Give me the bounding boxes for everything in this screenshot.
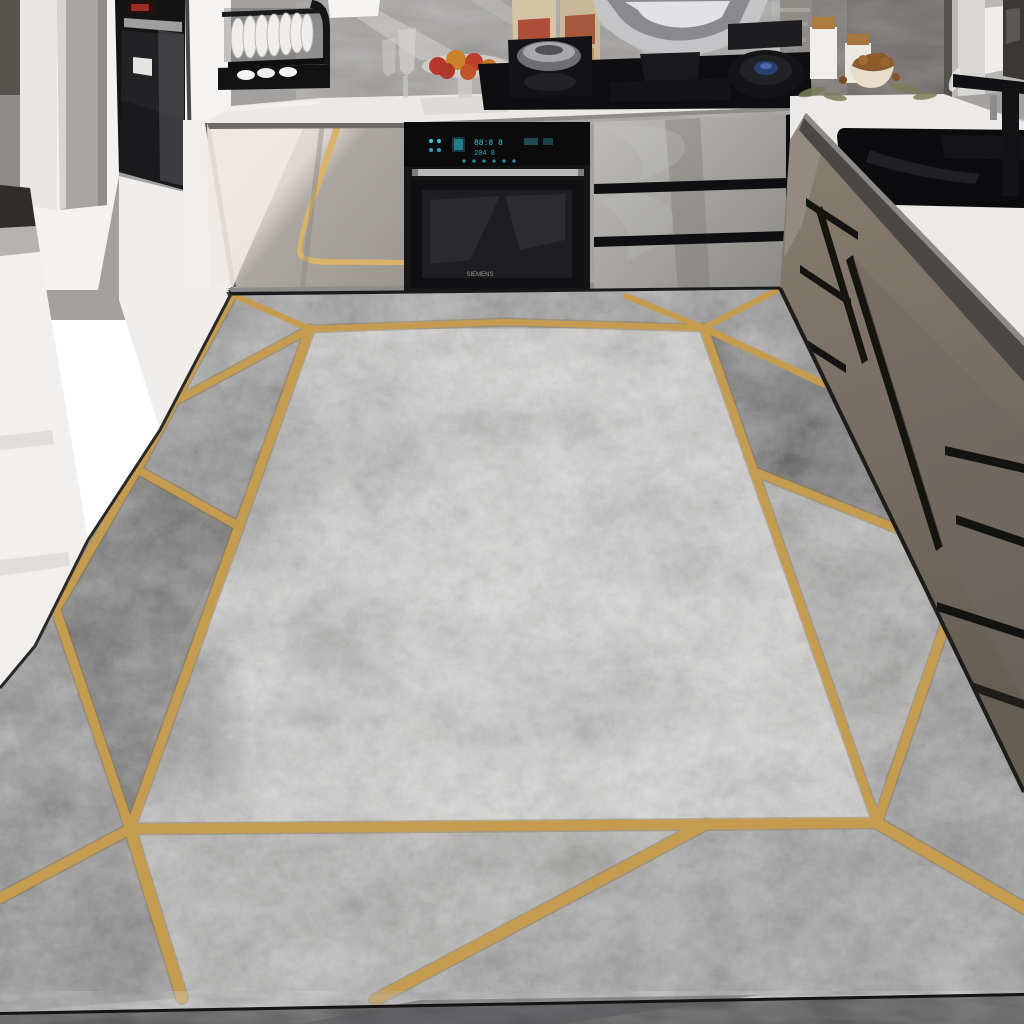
svg-text:88:8 8: 88:8 8 — [474, 139, 503, 148]
svg-text:SIEMENS: SIEMENS — [466, 272, 493, 278]
svg-text:204 8: 204 8 — [474, 150, 495, 158]
